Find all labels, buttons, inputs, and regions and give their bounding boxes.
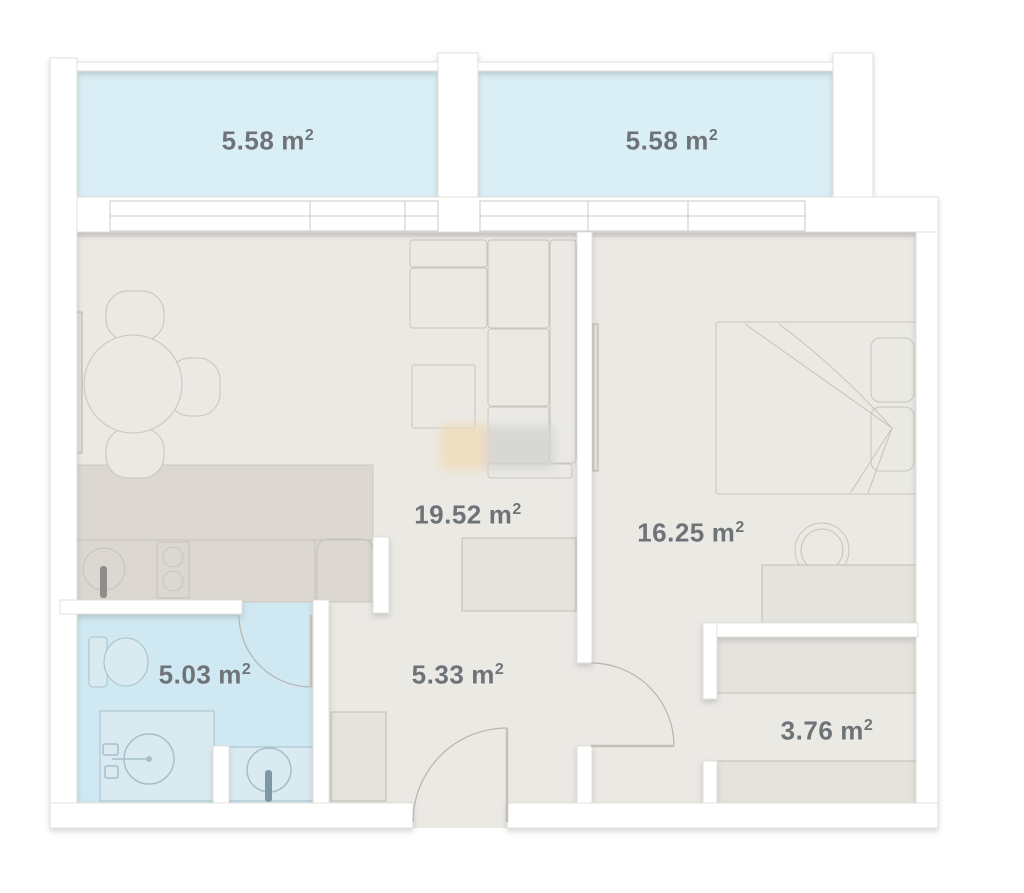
area-value: 16.25 xyxy=(637,518,705,548)
area-exponent: 2 xyxy=(512,501,521,518)
bathroom-faucet xyxy=(265,770,272,802)
dining-chair xyxy=(106,291,164,341)
wall-living-bedroom-stub xyxy=(577,746,592,803)
wall-left-outer xyxy=(50,58,77,803)
room-label-hallway: 5.33m2 xyxy=(412,660,505,691)
area-exponent: 2 xyxy=(735,519,744,536)
area-value: 3.76 xyxy=(781,716,834,746)
floor-shadow-left xyxy=(77,232,592,237)
area-value: 5.58 xyxy=(626,126,679,156)
room-label-bathroom: 5.03m2 xyxy=(159,660,252,691)
hallway-cabinet xyxy=(331,712,386,801)
dining-chair xyxy=(106,428,164,478)
area-exponent: 2 xyxy=(305,127,314,144)
kitchen-faucet xyxy=(100,566,107,598)
area-exponent: 2 xyxy=(709,127,718,144)
shower xyxy=(100,711,214,801)
wall-balcony-right-pillar xyxy=(833,53,873,200)
wall-living-bedroom xyxy=(577,232,592,663)
coffee-table xyxy=(412,365,475,428)
sofa-chaise xyxy=(410,268,487,328)
pillow xyxy=(871,407,914,471)
radiator xyxy=(593,324,598,471)
entrance-threshold-floor xyxy=(413,803,507,828)
area-exponent: 2 xyxy=(242,661,251,678)
watermark-gray-patch xyxy=(486,426,554,469)
wall-wardrobe-top xyxy=(703,623,918,637)
shower-head-center xyxy=(146,756,152,762)
floor-plan: 5.58m2 5.58m2 19.52m2 16.25m2 5.03m2 5.3… xyxy=(0,0,1024,893)
toilet-bowl xyxy=(104,638,148,686)
sofa-cushion xyxy=(488,329,549,406)
wall-bathroom-right xyxy=(313,600,329,803)
wall-wardrobe-left-upper xyxy=(703,623,717,699)
pillow xyxy=(871,338,914,402)
wardrobe-shelf-bottom xyxy=(717,761,916,803)
area-unit: m xyxy=(489,500,513,530)
wall-right-outer xyxy=(916,232,938,803)
sofa-cushion xyxy=(488,240,549,328)
wall-balcony-divider xyxy=(438,53,478,200)
area-unit: m xyxy=(471,660,495,690)
wall-bathroom-top xyxy=(60,600,242,614)
watermark-tan-patch xyxy=(441,424,487,470)
wall-shower-partition xyxy=(213,746,229,803)
floor-plan-svg xyxy=(0,0,1024,893)
area-value: 5.03 xyxy=(159,660,212,690)
blurred-watermark xyxy=(441,424,554,470)
wall-bottom-left xyxy=(50,803,413,828)
area-unit: m xyxy=(840,716,864,746)
room-label-living-room: 19.52m2 xyxy=(414,500,522,531)
area-unit: m xyxy=(712,518,736,548)
sofa-cushion xyxy=(410,240,487,267)
area-value: 19.52 xyxy=(414,500,482,530)
floor-shadow-right xyxy=(592,232,916,237)
area-value: 5.33 xyxy=(412,660,465,690)
tv-stand xyxy=(462,538,576,611)
room-label-wardrobe: 3.76m2 xyxy=(781,716,874,747)
area-exponent: 2 xyxy=(495,661,504,678)
area-value: 5.58 xyxy=(222,126,275,156)
wardrobe-shelf-top xyxy=(717,637,916,693)
radiator xyxy=(77,312,82,453)
area-unit: m xyxy=(281,126,305,156)
dining-table xyxy=(84,335,182,433)
wall-wardrobe-left-lower xyxy=(703,761,717,803)
room-label-bedroom: 16.25m2 xyxy=(637,518,745,549)
area-unit: m xyxy=(218,660,242,690)
wall-bottom-right xyxy=(507,803,938,828)
area-exponent: 2 xyxy=(864,717,873,734)
desk xyxy=(762,565,918,623)
wall-kitchen-stub xyxy=(373,537,389,613)
room-label-balcony-left: 5.58m2 xyxy=(222,126,315,157)
area-unit: m xyxy=(685,126,709,156)
room-label-balcony-right: 5.58m2 xyxy=(626,126,719,157)
